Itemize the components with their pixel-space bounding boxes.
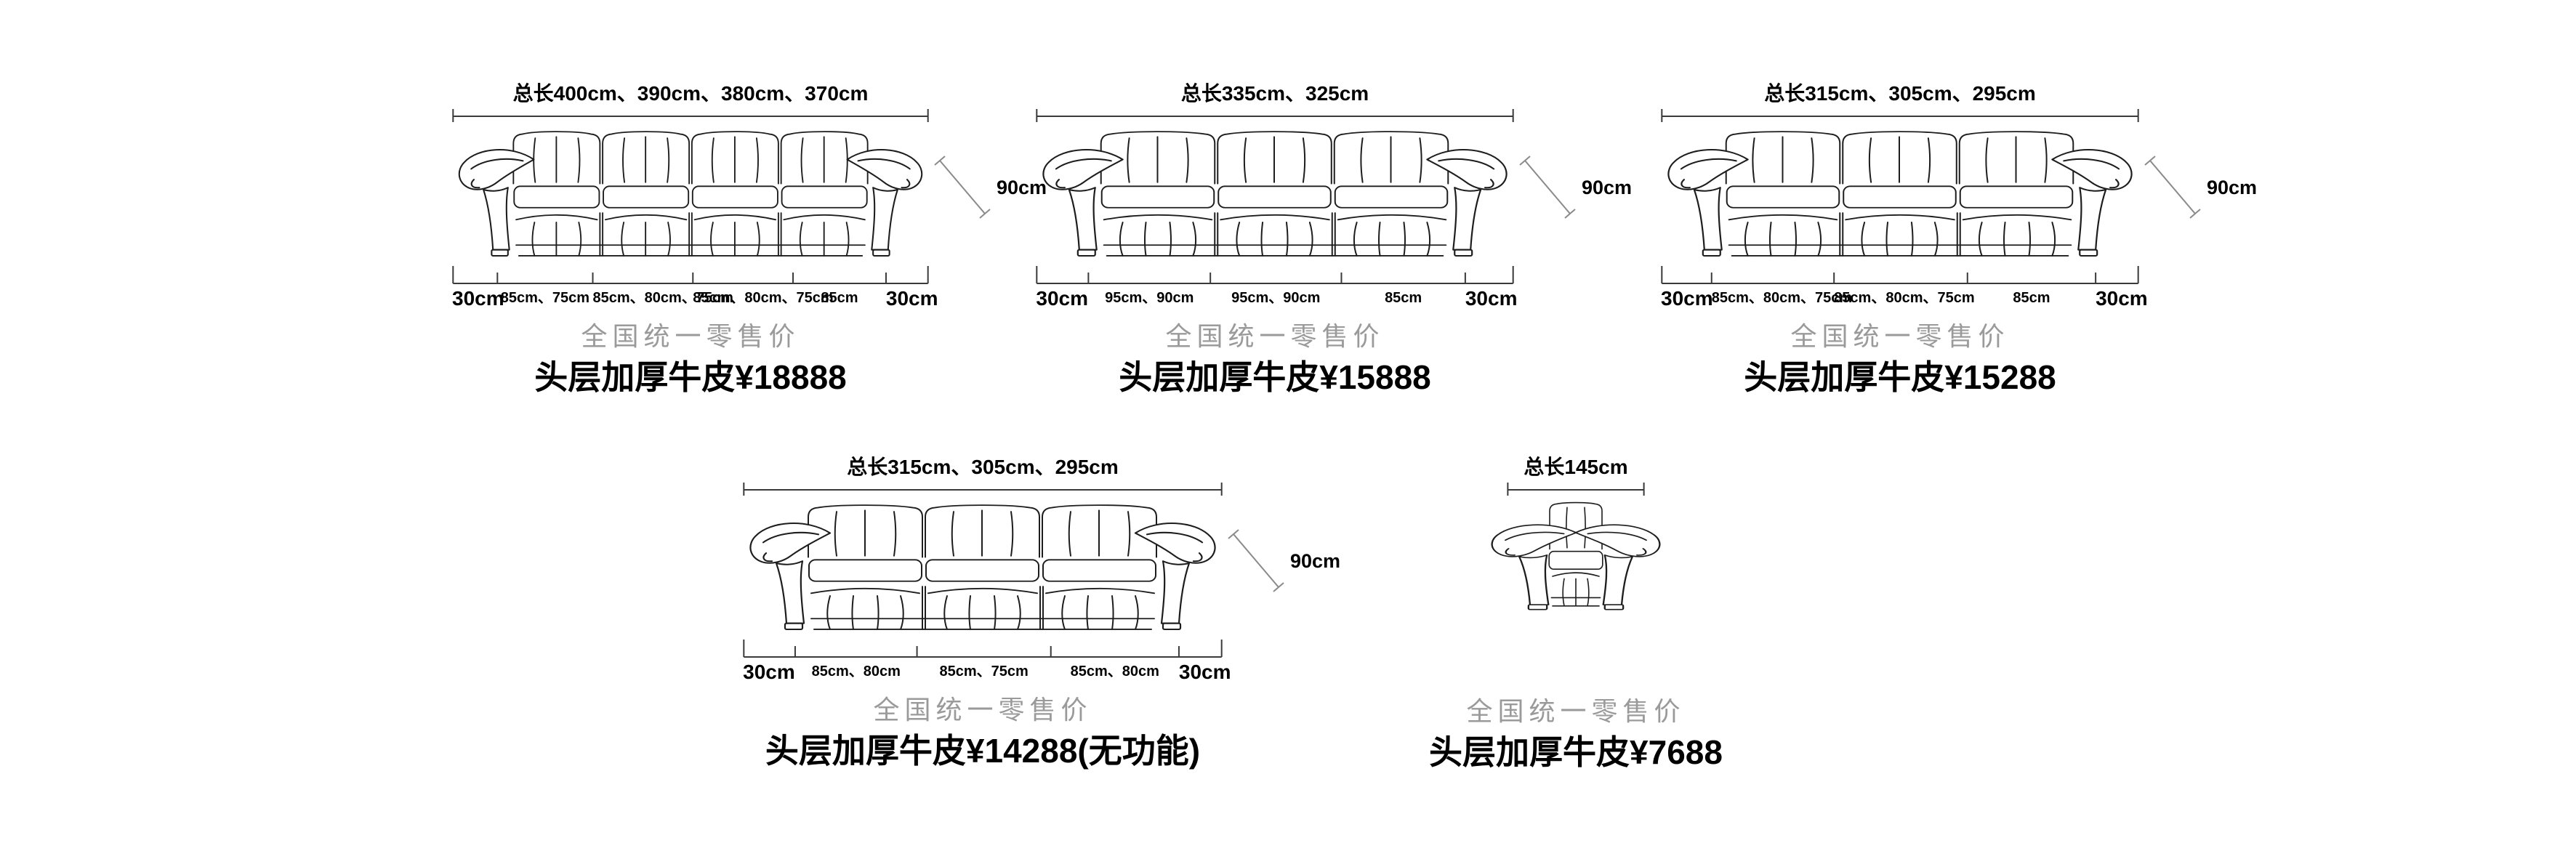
height-dimension-annotation: 90cm	[1226, 528, 1340, 594]
sofa-line-drawing	[1036, 122, 1514, 264]
dimension-segment-label: 30cm	[743, 661, 795, 684]
height-dimension-line	[933, 154, 994, 221]
bottom-segment-labels: 30cm85cm、75cm85cm、80cm、75cm85cm、80cm、75c…	[452, 287, 929, 310]
dimension-segment-label: 85cm	[1341, 287, 1465, 309]
total-length-label: 总长145cm	[1489, 455, 1663, 480]
dimension-segment-label: 85cm、80cm	[1051, 661, 1179, 682]
sofa-line-drawing	[452, 122, 929, 264]
armchair-line-drawing	[1489, 496, 1663, 612]
height-dimension-annotation: 90cm	[1518, 154, 1632, 221]
dimension-segment-label: 85cm、80cm、75cm	[1834, 287, 1968, 309]
dimension-segment-label: 85cm、75cm	[917, 661, 1051, 682]
price-label: 头层加厚牛皮¥18888	[452, 357, 929, 398]
dimension-segment-label: 30cm	[1036, 287, 1088, 310]
top-dimension-line	[1661, 109, 2139, 122]
bottom-segment-labels: 30cm85cm、80cm85cm、75cm85cm、80cm30cm	[743, 661, 1223, 684]
height-dimension-line	[1518, 154, 1579, 221]
top-dimension-line	[1508, 483, 1644, 496]
total-length-label: 总长315cm、305cm、295cm	[743, 455, 1223, 480]
retail-price-caption: 全国统一零售价	[1661, 320, 2139, 352]
height-dimension-annotation: 90cm	[2143, 154, 2257, 221]
dimension-segment-label: 95cm、90cm	[1210, 287, 1341, 309]
retail-price-caption: 全国统一零售价	[743, 694, 1223, 726]
dimension-segment-label: 85cm	[793, 287, 886, 309]
bottom-dimension-line	[1036, 264, 1514, 286]
top-dimension-line	[743, 483, 1223, 496]
total-length-label: 总长335cm、325cm	[1036, 81, 1514, 106]
dimension-segment-label: 85cm、80cm、75cm	[593, 287, 693, 309]
product-card-armchair: 总长145cm 全国统一零售价 头层加厚牛皮¥7688	[1489, 455, 1663, 773]
dimension-segment-label: 85cm、75cm	[497, 287, 592, 309]
dimension-segment-label: 85cm、80cm、75cm	[693, 287, 793, 309]
total-length-label: 总长400cm、390cm、380cm、370cm	[452, 81, 929, 106]
price-label: 头层加厚牛皮¥15288	[1661, 357, 2139, 398]
dimension-segment-label: 30cm	[452, 287, 497, 310]
dimension-segment-label: 30cm	[1465, 287, 1514, 310]
product-card-three-seat-sofa-no-function: 总长315cm、305cm、295cm 30cm85cm、80cm85cm、75…	[743, 455, 1223, 771]
product-card-three-seat-sofa-335: 总长335cm、325cm 30cm95cm、90cm95cm、90cm85cm…	[1036, 81, 1514, 398]
height-label: 90cm	[1290, 550, 1340, 573]
height-dimension-annotation: 90cm	[933, 154, 1047, 221]
dimension-segment-label: 30cm	[1661, 287, 1712, 310]
dimension-segment-label: 95cm、90cm	[1088, 287, 1210, 309]
dimension-segment-label: 30cm	[2096, 287, 2139, 310]
sofa-line-drawing	[743, 496, 1223, 637]
sofa-line-drawing	[1661, 122, 2139, 264]
dimension-segment-label: 85cm、80cm	[795, 661, 917, 682]
price-label: 头层加厚牛皮¥7688	[1489, 732, 1663, 773]
bottom-segment-labels: 30cm85cm、80cm、75cm85cm、80cm、75cm85cm30cm	[1661, 287, 2139, 310]
dimension-segment-label: 85cm、80cm、75cm	[1712, 287, 1834, 309]
bottom-dimension-line	[452, 264, 929, 286]
top-dimension-line	[452, 109, 929, 122]
product-card-three-seat-sofa-315: 总长315cm、305cm、295cm 30cm85cm、80cm、75cm85…	[1661, 81, 2139, 398]
product-card-four-seat-sofa: 总长400cm、390cm、380cm、370cm 30cm85cm、75cm8…	[452, 81, 929, 398]
height-label: 90cm	[2207, 177, 2257, 199]
height-label: 90cm	[1582, 177, 1632, 199]
total-length-label: 总长315cm、305cm、295cm	[1661, 81, 2139, 106]
bottom-dimension-line	[743, 637, 1223, 659]
dimension-segment-label: 85cm	[1968, 287, 2096, 309]
price-label: 头层加厚牛皮¥14288(无功能)	[743, 730, 1223, 771]
dimension-segment-label: 30cm	[1179, 661, 1223, 684]
bottom-dimension-line	[1661, 264, 2139, 286]
height-dimension-line	[1226, 528, 1287, 594]
dimension-segment-label: 30cm	[886, 287, 929, 310]
retail-price-caption: 全国统一零售价	[1489, 695, 1663, 727]
spec-sheet-canvas: 总长400cm、390cm、380cm、370cm 30cm85cm、75cm8…	[0, 0, 2576, 859]
retail-price-caption: 全国统一零售价	[452, 320, 929, 352]
price-label: 头层加厚牛皮¥15888	[1036, 357, 1514, 398]
height-dimension-line	[2143, 154, 2204, 221]
bottom-segment-labels: 30cm95cm、90cm95cm、90cm85cm30cm	[1036, 287, 1514, 310]
retail-price-caption: 全国统一零售价	[1036, 320, 1514, 352]
top-dimension-line	[1036, 109, 1514, 122]
